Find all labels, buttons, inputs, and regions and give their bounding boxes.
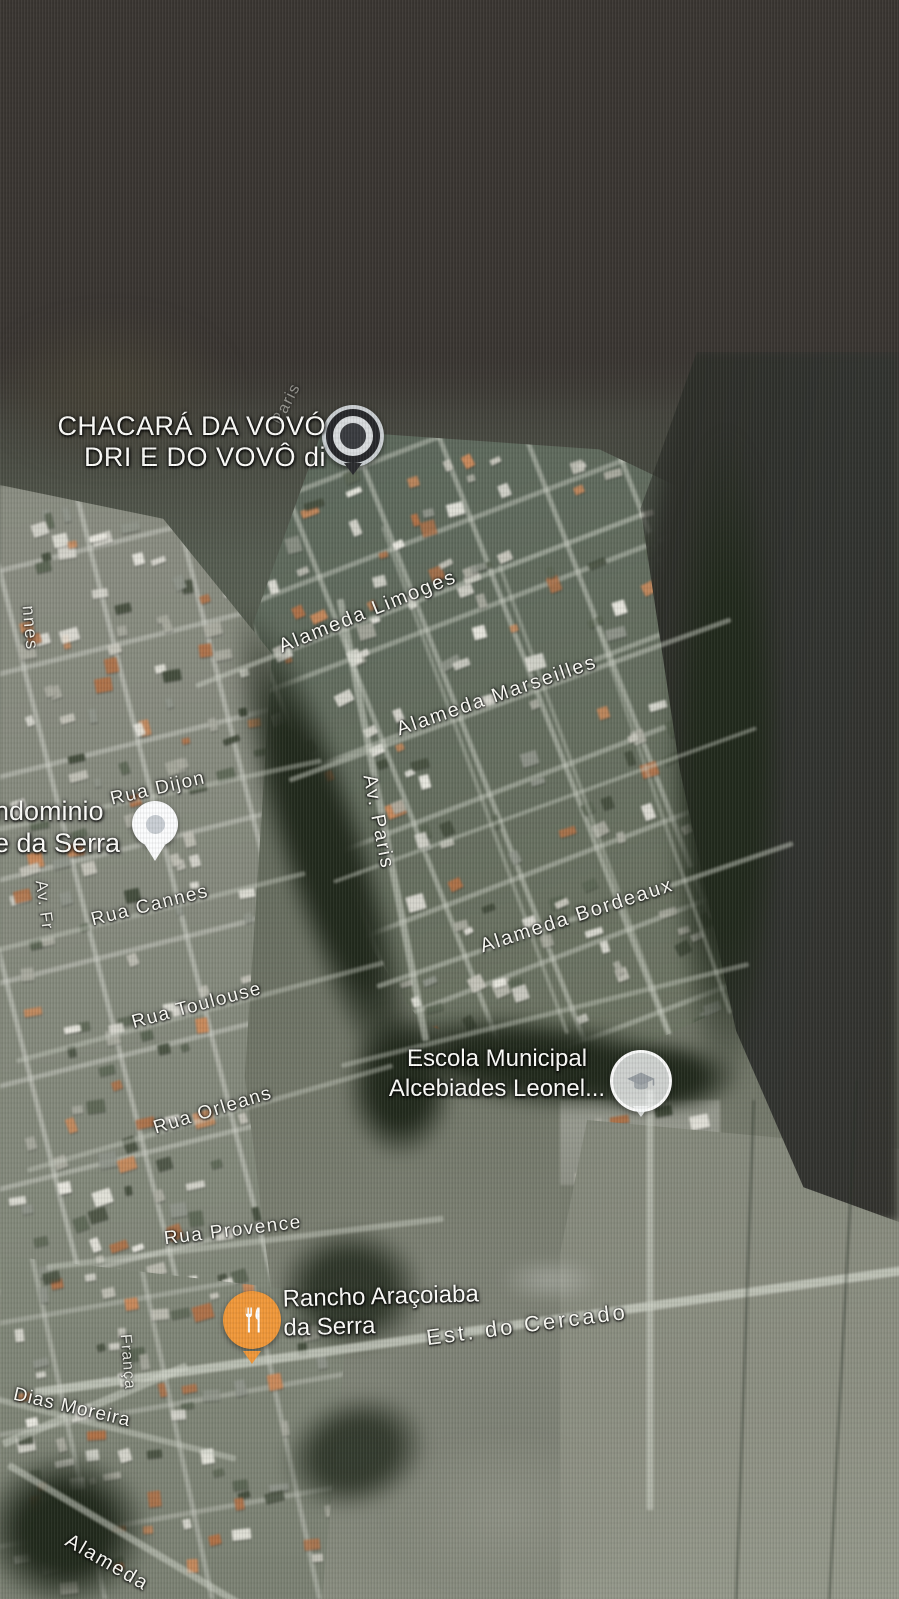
- screen-glare: [480, 1250, 620, 1310]
- field-boundary: [735, 1100, 755, 1599]
- field-boundary: [828, 1080, 858, 1599]
- street-label-fragment-nnes: nnes: [18, 605, 43, 652]
- restaurant-icon: [223, 1291, 281, 1349]
- poi-label-chacara[interactable]: CHACARÁ DA VOVÓ DRI E DO VOVÔ di: [34, 411, 326, 473]
- poi-label-line: Alcebiades Leonel...: [337, 1074, 657, 1104]
- road-line: [592, 616, 733, 1014]
- poi-label-rancho[interactable]: Rancho Araçoiaba da Serra: [282, 1279, 480, 1342]
- satellite-map[interactable]: Alameda Limoges Alameda Marseilles Av. P…: [0, 0, 899, 1599]
- restaurant-pin-rancho[interactable]: [223, 1291, 281, 1349]
- poi-label-line: e da Serra: [0, 827, 120, 859]
- poi-label-escola[interactable]: Escola Municipal Alcebiades Leonel...: [337, 1044, 657, 1104]
- road-line: [498, 564, 673, 1035]
- road-line: [647, 1090, 654, 1510]
- screen-photo: Alameda Limoges Alameda Marseilles Av. P…: [0, 0, 899, 1599]
- poi-pin-chacara[interactable]: [322, 405, 384, 467]
- poi-label-line: CHACARÁ DA VOVÓ: [34, 411, 326, 442]
- location-pin-condominio[interactable]: [132, 801, 178, 847]
- poi-label-line: da Serra: [283, 1308, 480, 1342]
- location-pin-icon: [132, 801, 178, 847]
- poi-label-line: ndominio: [0, 795, 120, 827]
- poi-label-condominio[interactable]: ndominio e da Serra: [0, 795, 120, 859]
- poi-label-line: DRI E DO VOVÔ di: [34, 442, 326, 473]
- poi-label-line: Escola Municipal: [337, 1044, 657, 1074]
- poi-pin-icon: [322, 405, 384, 467]
- poi-label-line: Rancho Araçoiaba: [282, 1279, 479, 1313]
